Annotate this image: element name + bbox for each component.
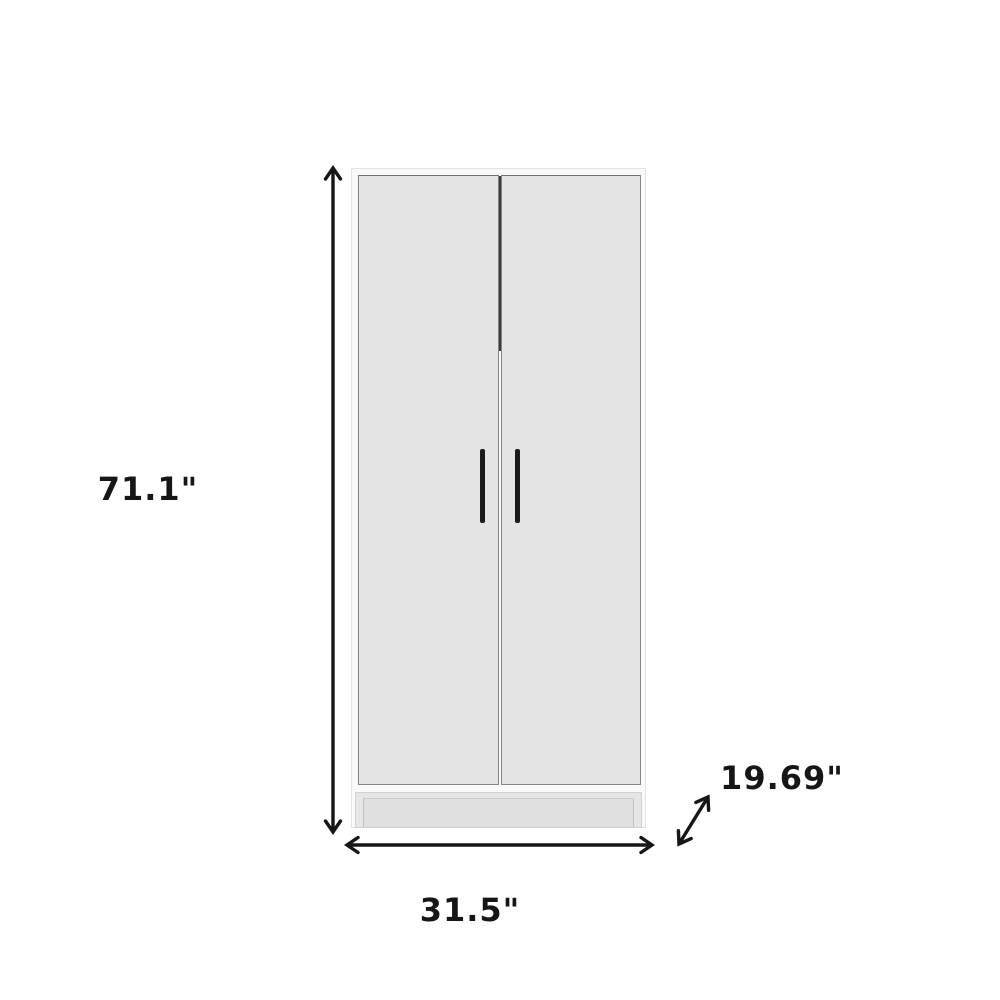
left-door-handle (480, 449, 485, 523)
right-door-handle (515, 449, 520, 523)
depth-dimension-label: 19.69" (702, 759, 862, 797)
depth-dimension-arrow (679, 797, 708, 844)
cabinet-base (355, 792, 642, 828)
cabinet-base-panel (363, 798, 634, 827)
wardrobe-illustration (351, 168, 646, 828)
right-door (501, 175, 642, 785)
door-seam (499, 176, 501, 351)
dimension-diagram: 71.1" 31.5" 19.69" (0, 0, 1000, 1000)
width-dimension-label: 31.5" (390, 891, 550, 929)
left-door (358, 175, 499, 785)
height-dimension-label: 71.1" (68, 470, 228, 508)
